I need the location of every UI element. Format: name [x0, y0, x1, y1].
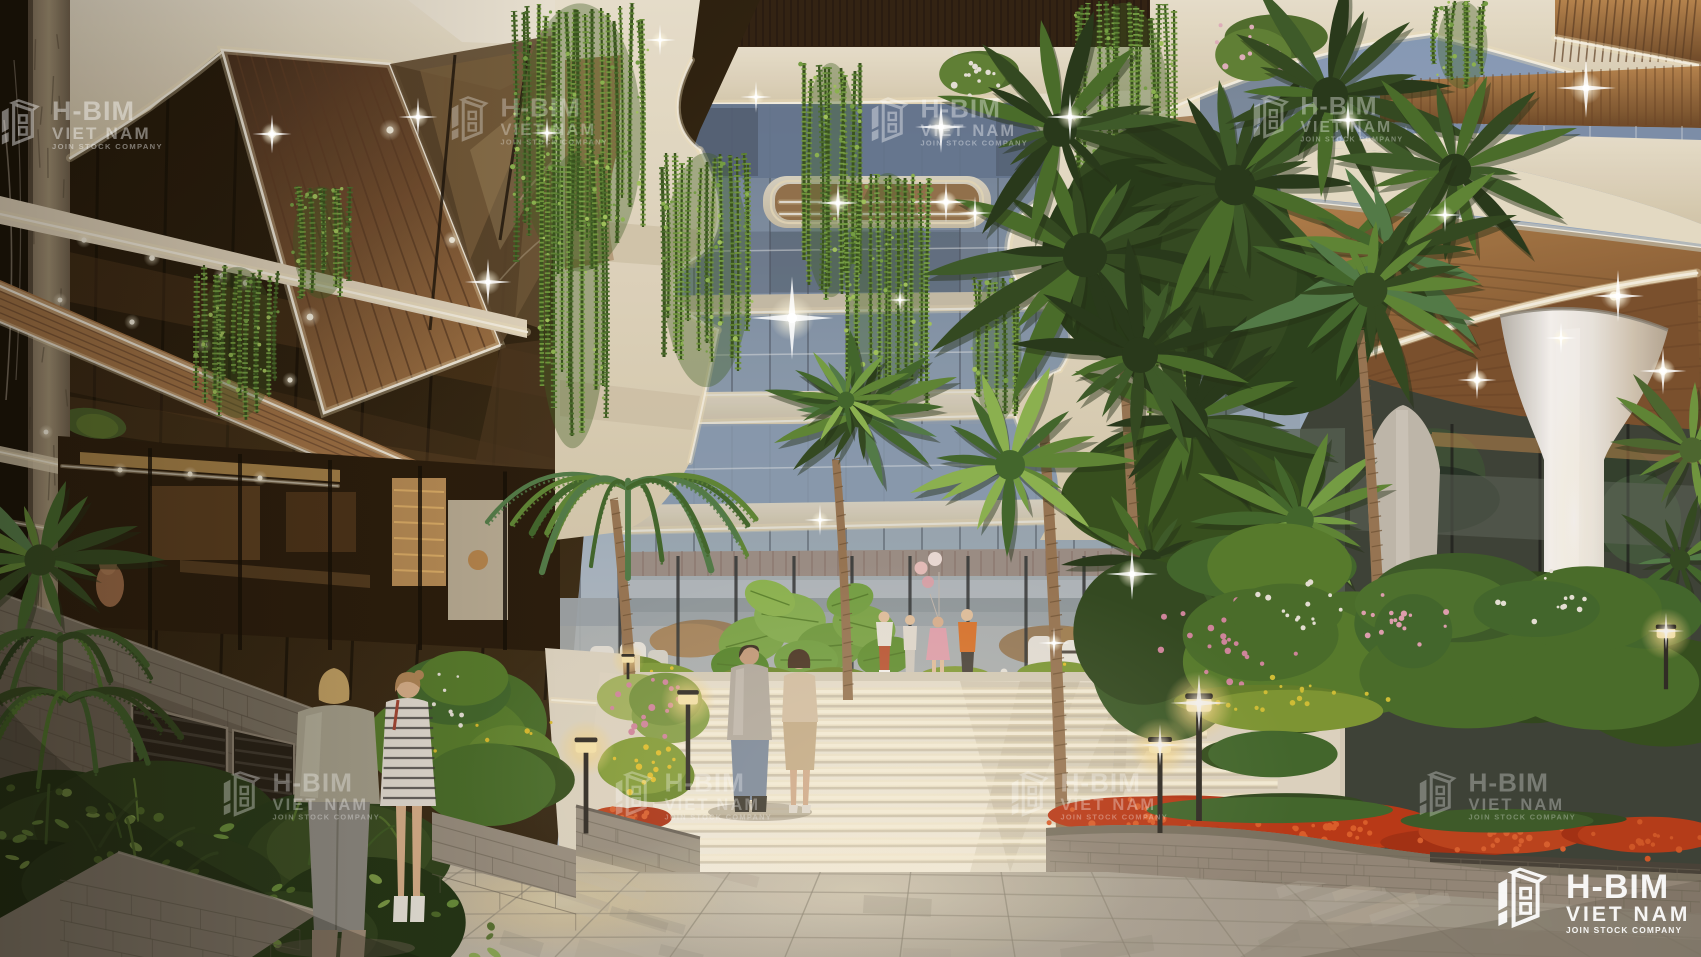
svg-text:H-BIM: H-BIM	[1060, 767, 1140, 797]
svg-text:VIET NAM: VIET NAM	[664, 796, 760, 814]
svg-text:VIET NAM: VIET NAM	[1060, 796, 1156, 814]
svg-text:H-BIM: H-BIM	[500, 92, 580, 122]
svg-text:H-BIM: H-BIM	[52, 96, 135, 126]
svg-text:JOIN STOCK COMPANY: JOIN STOCK COMPANY	[52, 142, 163, 151]
svg-text:H-BIM: H-BIM	[920, 93, 1000, 123]
svg-text:H-BIM: H-BIM	[1468, 767, 1548, 797]
svg-text:JOIN STOCK COMPANY: JOIN STOCK COMPANY	[664, 812, 772, 821]
svg-text:VIET NAM: VIET NAM	[1468, 796, 1564, 814]
svg-text:JOIN STOCK COMPANY: JOIN STOCK COMPANY	[1060, 812, 1168, 821]
svg-text:JOIN STOCK COMPANY: JOIN STOCK COMPANY	[272, 812, 380, 821]
svg-text:VIET NAM: VIET NAM	[52, 124, 151, 143]
svg-text:VIET NAM: VIET NAM	[272, 796, 368, 814]
svg-text:H-BIM: H-BIM	[272, 767, 352, 797]
svg-text:VIET NAM: VIET NAM	[920, 122, 1016, 140]
svg-text:H-BIM: H-BIM	[1566, 868, 1669, 906]
svg-text:VIET NAM: VIET NAM	[1566, 903, 1690, 926]
svg-text:VIET NAM: VIET NAM	[1300, 119, 1392, 136]
svg-text:JOIN STOCK COMPANY: JOIN STOCK COMPANY	[500, 137, 608, 146]
svg-text:VIET NAM: VIET NAM	[500, 121, 596, 139]
svg-text:JOIN STOCK COMPANY: JOIN STOCK COMPANY	[920, 138, 1028, 147]
svg-text:JOIN STOCK COMPANY: JOIN STOCK COMPANY	[1566, 925, 1682, 935]
svg-text:H-BIM: H-BIM	[1300, 92, 1377, 120]
svg-text:JOIN STOCK COMPANY: JOIN STOCK COMPANY	[1300, 136, 1403, 143]
svg-text:JOIN STOCK COMPANY: JOIN STOCK COMPANY	[1468, 812, 1576, 821]
svg-text:H-BIM: H-BIM	[664, 767, 744, 797]
